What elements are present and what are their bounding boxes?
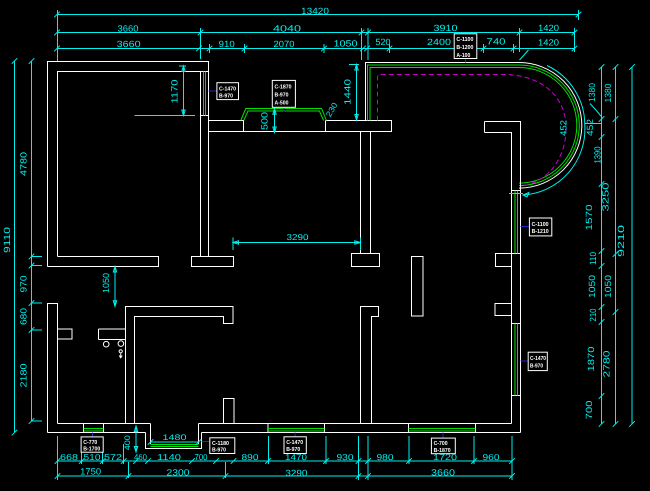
svg-text:1140: 1140 (157, 452, 181, 462)
svg-text:1570: 1570 (584, 205, 594, 231)
svg-text:970: 970 (19, 276, 29, 293)
svg-text:1050: 1050 (603, 275, 613, 298)
svg-text:A-500: A-500 (275, 99, 289, 106)
svg-text:1870: 1870 (586, 347, 596, 372)
svg-text:960: 960 (483, 452, 500, 462)
svg-text:510: 510 (84, 452, 101, 462)
svg-text:4780: 4780 (19, 152, 29, 176)
svg-text:452: 452 (559, 120, 569, 136)
svg-text:700: 700 (195, 452, 208, 462)
svg-text:B-970: B-970 (530, 363, 543, 370)
svg-text:9110: 9110 (2, 227, 12, 253)
svg-text:3660: 3660 (431, 468, 455, 478)
svg-text:572: 572 (104, 452, 122, 462)
svg-text:520: 520 (376, 37, 391, 47)
svg-text:210: 210 (588, 309, 598, 322)
svg-text:930: 930 (337, 452, 354, 462)
svg-text:3660: 3660 (117, 39, 141, 49)
svg-text:980: 980 (377, 452, 394, 462)
svg-text:C-1100: C-1100 (532, 221, 549, 228)
svg-text:B-970: B-970 (286, 446, 300, 453)
svg-text:3250: 3250 (601, 183, 611, 212)
svg-text:452: 452 (585, 119, 595, 136)
svg-text:B-1200: B-1200 (456, 44, 473, 51)
svg-text:110: 110 (588, 252, 598, 265)
svg-text:700: 700 (584, 401, 594, 420)
svg-text:B-1210: B-1210 (532, 228, 549, 235)
svg-text:C-1470: C-1470 (530, 355, 546, 362)
svg-text:1050: 1050 (101, 273, 111, 293)
svg-text:400: 400 (123, 435, 132, 451)
svg-text:2070: 2070 (274, 39, 295, 49)
svg-text:C-1470: C-1470 (219, 85, 236, 92)
svg-text:890: 890 (242, 452, 259, 462)
svg-text:1380: 1380 (603, 84, 613, 103)
svg-text:C-1470: C-1470 (286, 439, 303, 446)
svg-text:668: 668 (60, 452, 78, 462)
svg-text:1440: 1440 (343, 79, 353, 105)
svg-text:4040: 4040 (273, 24, 301, 34)
svg-text:2780: 2780 (602, 351, 612, 378)
svg-text:C-700: C-700 (434, 440, 448, 447)
svg-text:1390: 1390 (593, 147, 603, 164)
svg-text:1420: 1420 (538, 38, 559, 48)
svg-text:3660: 3660 (118, 24, 139, 34)
svg-text:A-100: A-100 (456, 52, 470, 59)
svg-text:1420: 1420 (538, 23, 559, 33)
svg-text:B-1870: B-1870 (434, 447, 451, 454)
svg-text:3290: 3290 (287, 232, 309, 242)
svg-text:1050: 1050 (334, 39, 358, 49)
svg-text:C-1100: C-1100 (456, 36, 473, 43)
svg-text:3910: 3910 (434, 23, 458, 33)
svg-text:910: 910 (219, 39, 235, 49)
svg-text:1050: 1050 (587, 275, 597, 298)
svg-text:B-970: B-970 (275, 91, 289, 98)
svg-text:1170: 1170 (170, 80, 180, 104)
svg-text:500: 500 (260, 112, 270, 130)
svg-text:C-770: C-770 (83, 439, 97, 446)
svg-text:1480: 1480 (163, 433, 188, 442)
svg-text:1380: 1380 (587, 83, 597, 102)
svg-text:13420: 13420 (301, 6, 329, 16)
svg-text:2180: 2180 (19, 364, 29, 388)
svg-text:C-1180: C-1180 (212, 440, 229, 447)
svg-text:C-1870: C-1870 (275, 83, 292, 90)
svg-text:B-970: B-970 (219, 92, 233, 99)
svg-text:B-970: B-970 (212, 447, 226, 454)
svg-text:9210: 9210 (616, 225, 626, 257)
svg-text:B-1700: B-1700 (83, 446, 100, 453)
svg-text:1750: 1750 (80, 467, 101, 477)
svg-text:680: 680 (19, 308, 29, 325)
svg-text:3290: 3290 (285, 468, 307, 478)
svg-text:740: 740 (487, 37, 506, 47)
svg-text:2300: 2300 (167, 468, 190, 478)
svg-text:2400: 2400 (427, 37, 451, 47)
